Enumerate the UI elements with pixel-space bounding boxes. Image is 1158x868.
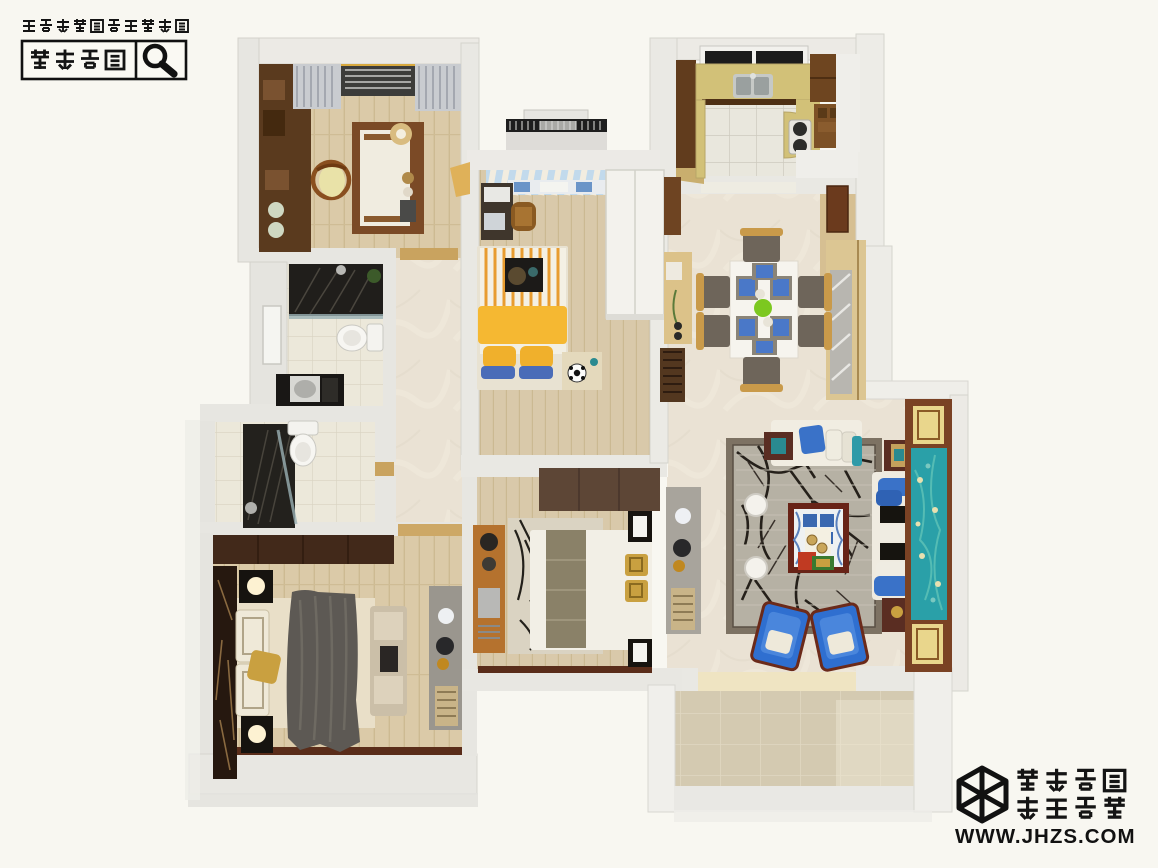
svg-text:WWW.JHZS.COM: WWW.JHZS.COM <box>955 825 1136 848</box>
